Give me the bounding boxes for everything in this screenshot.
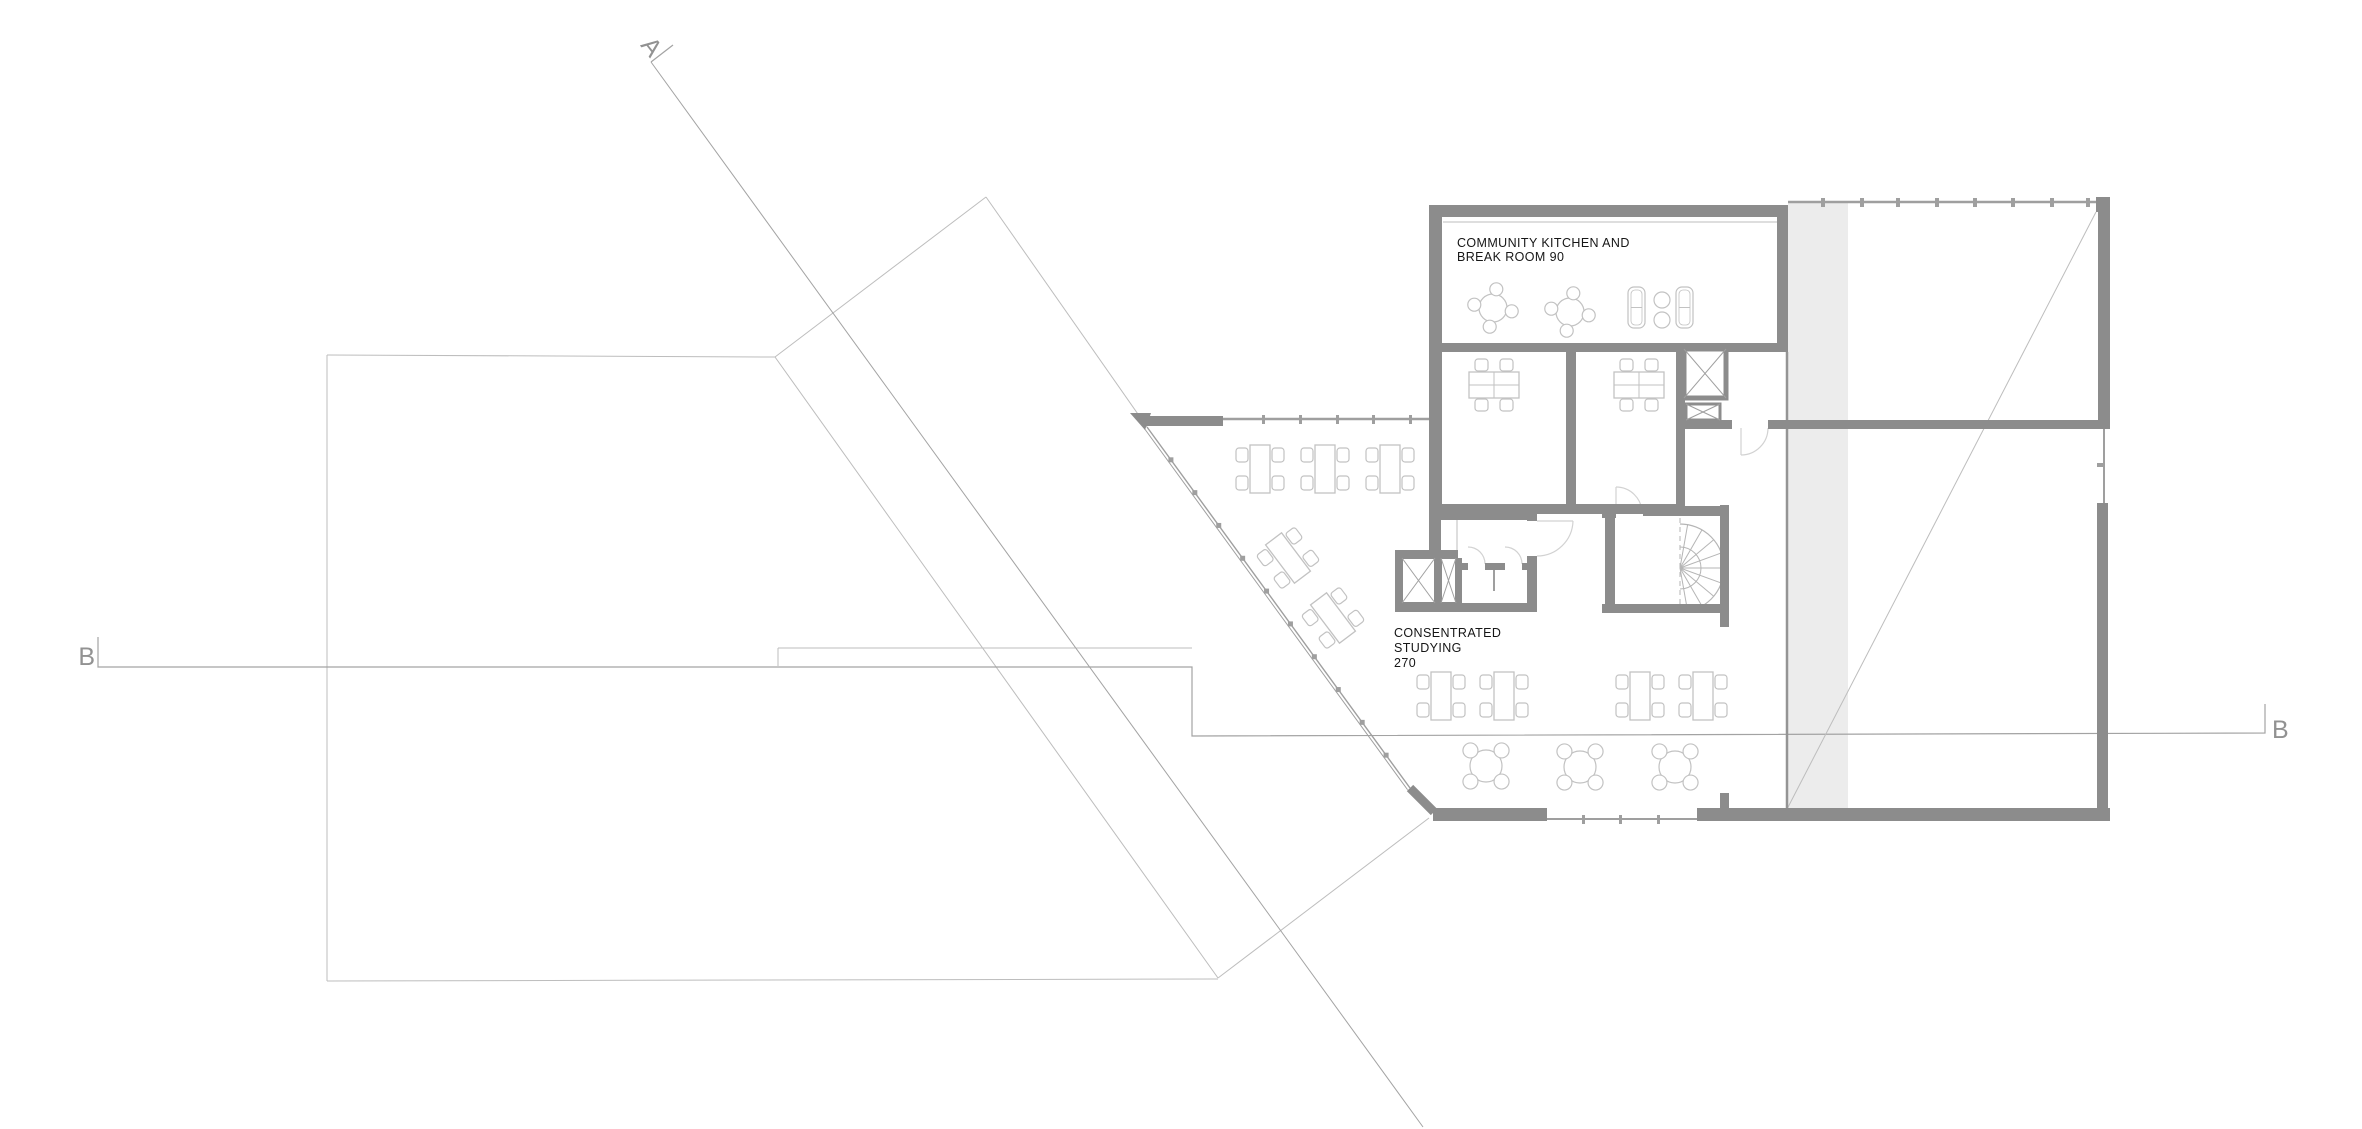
studying-label-line1: CONSENTRATED	[1394, 626, 1501, 640]
section-label-a: A	[635, 32, 668, 63]
section-lines	[98, 45, 2265, 1127]
atrium-gray-band	[1788, 203, 1848, 813]
floor-below-outline	[327, 197, 1429, 981]
kitchen-label-line2: BREAK ROOM 90	[1457, 250, 1564, 264]
walls-layer	[1130, 197, 2110, 821]
studying-label-line3: 270	[1394, 656, 1416, 670]
section-label-b-right: B	[2272, 716, 2289, 744]
floor-plan-canvas: COMMUNITY KITCHEN AND BREAK ROOM 90 CONS…	[0, 0, 2362, 1129]
spiral-stair	[1680, 518, 1724, 612]
room-label-studying: CONSENTRATED STUDYING 270	[1394, 626, 1501, 670]
floor-plan-sheet: COMMUNITY KITCHEN AND BREAK ROOM 90 CONS…	[0, 0, 2362, 1129]
studying-label-line2: STUDYING	[1394, 641, 1462, 655]
furniture-layer	[1236, 283, 1727, 790]
kitchen-label-line1: COMMUNITY KITCHEN AND	[1457, 236, 1630, 250]
section-label-b-left: B	[78, 643, 95, 671]
room-label-kitchen: COMMUNITY KITCHEN AND BREAK ROOM 90	[1457, 236, 1630, 264]
